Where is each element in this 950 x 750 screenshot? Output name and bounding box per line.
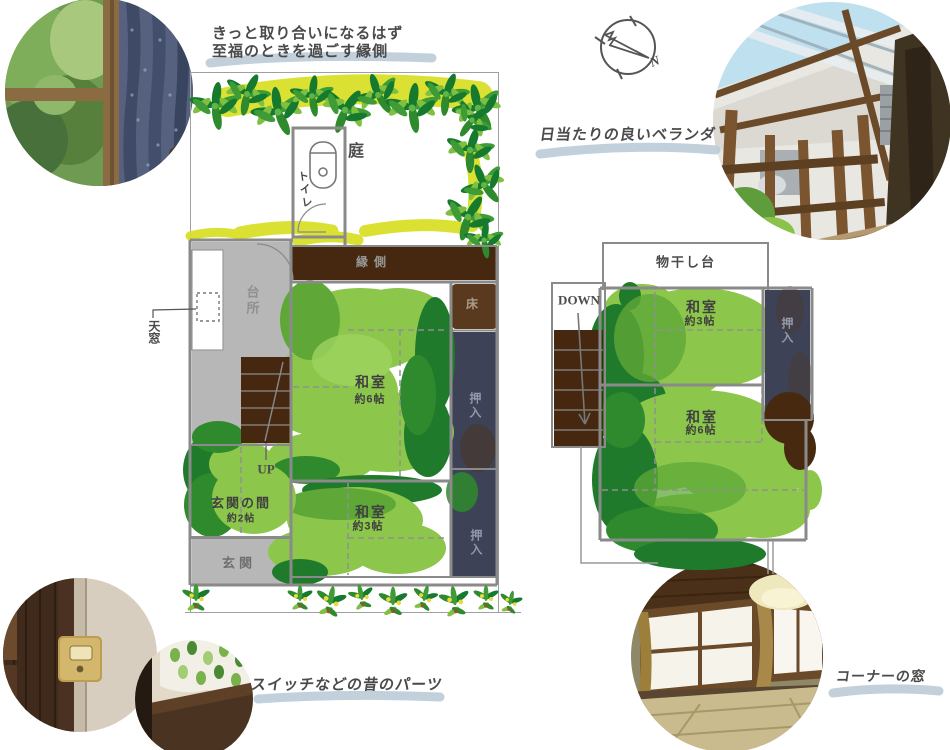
room6-1f-size: 約6帖 [354, 394, 385, 407]
photo-corner-room [630, 558, 836, 750]
closet-upper-1f-label: 押入 [467, 392, 481, 420]
room6-2f-name: 和室 [686, 409, 718, 425]
photo-vintage-switch [0, 575, 160, 735]
compass-north-icon [595, 16, 655, 79]
corner-window-note: コーナーの窓 [835, 666, 928, 686]
drying-deck-label: 物干し台 [656, 256, 716, 271]
room3-2f-size: 約3帖 [684, 316, 715, 329]
parts-note: スイッチなどの昔のパーツ [250, 674, 445, 695]
floorplan-graphic [0, 0, 950, 750]
street-plants [181, 582, 525, 620]
kitchen-label: 台所 [244, 285, 259, 317]
room6-2f-size: 約6帖 [685, 425, 716, 438]
stairs-2f [554, 313, 603, 447]
photo-veranda [710, 0, 950, 270]
closet-lower-1f-label: 押入 [468, 529, 482, 557]
entrance-hall-name: 玄関の間 [211, 497, 271, 512]
engawa-note-line2: 至福のときを過ごす縁側 [212, 40, 388, 61]
room6-1f-name: 和室 [355, 374, 387, 390]
entrance-label: 玄関 [222, 557, 256, 572]
tokonoma-label: 床 [466, 298, 478, 312]
room3-1f-name: 和室 [355, 504, 387, 520]
veranda-note: 日当たりの良いベランダ [539, 124, 718, 145]
garden-label: 庭 [348, 143, 364, 161]
engawa-label: 縁側 [356, 256, 392, 270]
floorplan-page: きっと取り合いになるはず 至福のときを過ごす縁側 日当たりの良いベランダ スイッ… [0, 0, 950, 750]
entrance-hall-size: 約2帖 [227, 513, 256, 525]
down-label: DOWN [558, 294, 600, 309]
skylight-symbol [153, 293, 219, 321]
room3-1f-size: 約3帖 [352, 521, 383, 534]
photo-garden-window [0, 0, 210, 200]
toilet-fixture-icon [310, 142, 336, 188]
room3-2f-name: 和室 [686, 299, 718, 315]
skylight-label: 天窓 [146, 320, 160, 344]
closet-2f-label: 押入 [779, 317, 793, 345]
up-label: UP [257, 463, 274, 478]
